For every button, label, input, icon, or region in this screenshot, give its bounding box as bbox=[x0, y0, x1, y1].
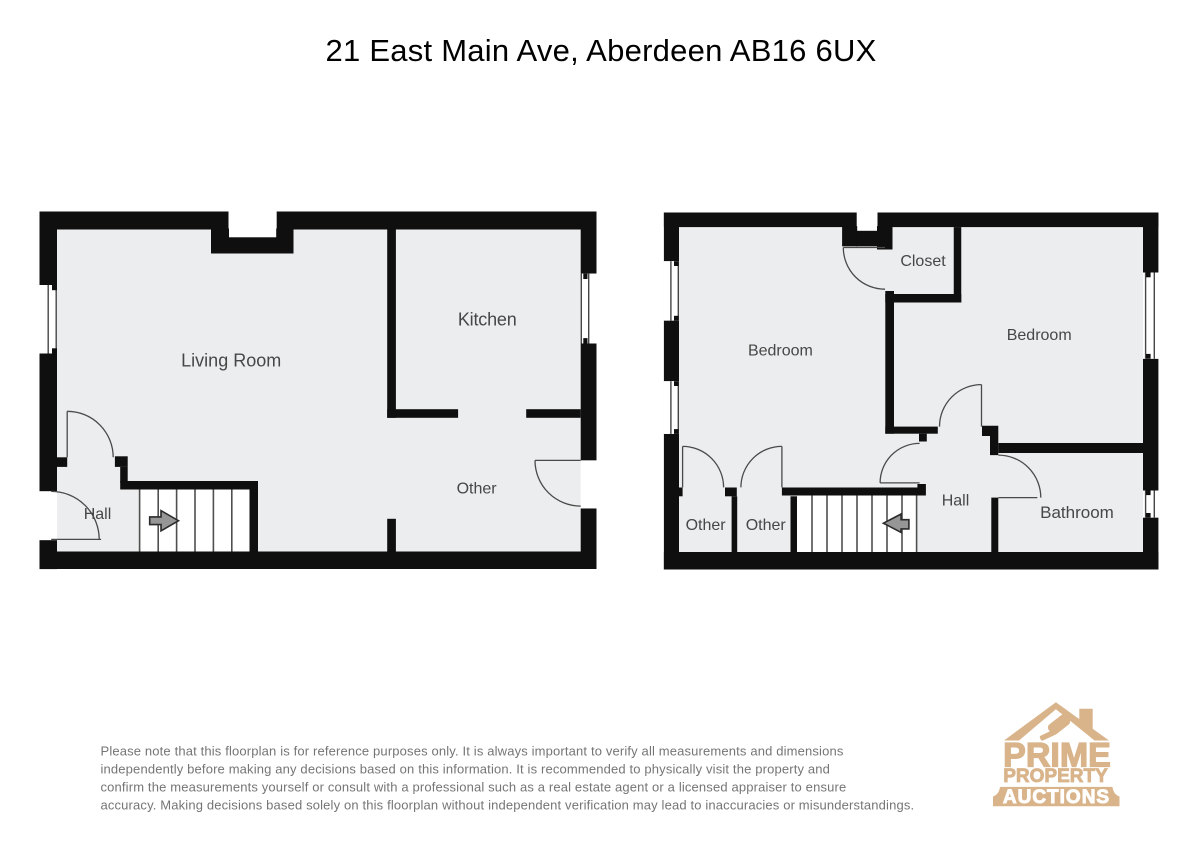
svg-text:accuracy. Making decisions bas: accuracy. Making decisions based solely … bbox=[101, 798, 915, 813]
svg-text:PROPERTY: PROPERTY bbox=[1003, 766, 1108, 787]
svg-text:Other: Other bbox=[686, 517, 727, 534]
svg-text:confirm the measurements yours: confirm the measurements yourself or con… bbox=[101, 780, 847, 795]
svg-text:Bedroom: Bedroom bbox=[1007, 327, 1072, 344]
svg-text:21 East Main Ave, Aberdeen AB1: 21 East Main Ave, Aberdeen AB16 6UX bbox=[325, 33, 876, 68]
svg-text:independently before making an: independently before making any decision… bbox=[101, 762, 831, 777]
svg-text:Hall: Hall bbox=[942, 492, 970, 509]
svg-text:Hall: Hall bbox=[84, 506, 112, 523]
svg-text:Please note that this floorpla: Please note that this floorplan is for r… bbox=[101, 743, 844, 758]
svg-text:Kitchen: Kitchen bbox=[458, 310, 517, 330]
svg-text:AUCTIONS: AUCTIONS bbox=[1003, 787, 1110, 808]
svg-text:Bedroom: Bedroom bbox=[748, 343, 813, 360]
svg-text:Closet: Closet bbox=[900, 253, 946, 270]
svg-text:Other: Other bbox=[457, 481, 498, 498]
svg-text:Living Room: Living Room bbox=[181, 351, 281, 371]
svg-text:Bathroom: Bathroom bbox=[1040, 503, 1114, 522]
svg-text:Other: Other bbox=[746, 517, 787, 534]
